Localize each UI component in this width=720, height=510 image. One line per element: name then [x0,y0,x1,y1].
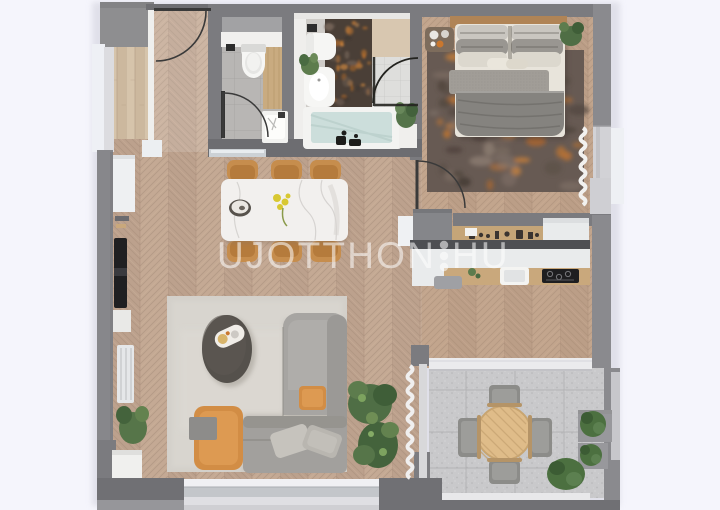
svg-text:UJOTTHON: UJOTTHON [217,235,436,276]
svg-text:HU: HU [452,235,510,276]
